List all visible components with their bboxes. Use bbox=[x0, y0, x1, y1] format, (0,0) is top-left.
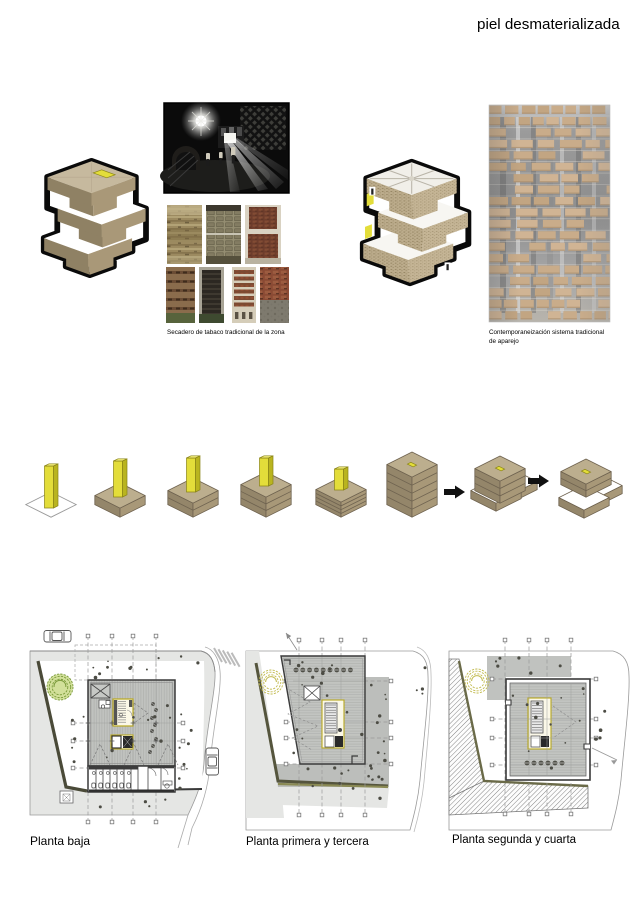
svg-text:Planta primera y tercera: Planta primera y tercera bbox=[246, 836, 369, 848]
svg-text:Planta baja: Planta baja bbox=[30, 834, 90, 848]
svg-text:de aparejo: de aparejo bbox=[489, 338, 519, 345]
svg-text:Secadero de tabaco tradicional: Secadero de tabaco tradicional de la zon… bbox=[167, 329, 285, 336]
svg-text:piel desmaterializada: piel desmaterializada bbox=[477, 16, 620, 33]
svg-text:Contemporaneización sistema tr: Contemporaneización sistema tradicional bbox=[489, 329, 604, 336]
svg-text:Planta segunda y cuarta: Planta segunda y cuarta bbox=[452, 834, 577, 846]
